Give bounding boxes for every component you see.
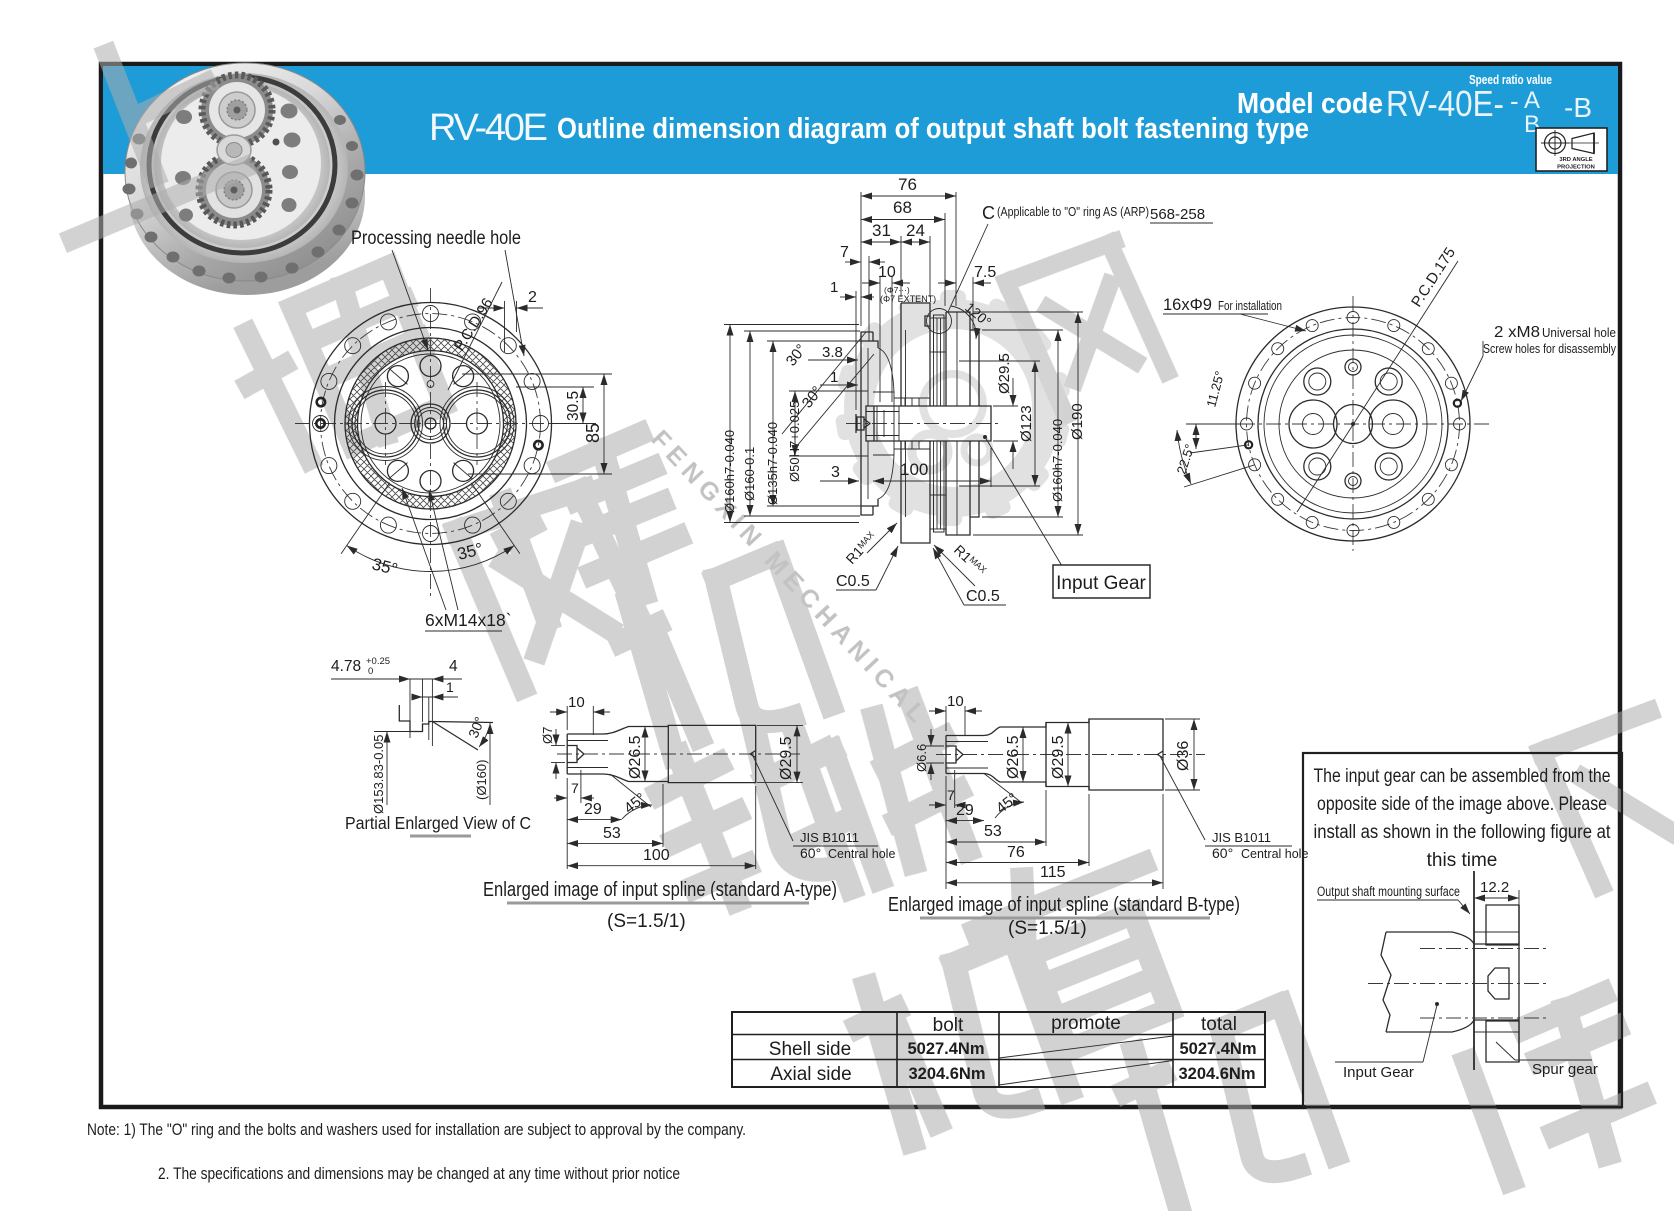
svg-text:Ø153.83-0.05: Ø153.83-0.05 — [371, 734, 386, 814]
svg-text:3RD ANGLE: 3RD ANGLE — [1559, 157, 1592, 163]
svg-text:Partial Enlarged View of C: Partial Enlarged View of C — [345, 813, 531, 833]
svg-text:C: C — [982, 203, 995, 223]
svg-text:Central hole: Central hole — [1241, 847, 1308, 861]
svg-text:Model code: Model code — [1237, 88, 1383, 120]
svg-text:JIS B1011: JIS B1011 — [800, 830, 859, 845]
svg-text:Input Gear: Input Gear — [1343, 1064, 1414, 1081]
svg-text:Ø160-0.1: Ø160-0.1 — [742, 447, 757, 501]
svg-text:C0.5: C0.5 — [966, 588, 1000, 605]
svg-text:JIS B1011: JIS B1011 — [1212, 830, 1271, 845]
svg-text:29: 29 — [584, 801, 602, 818]
svg-text:RV-40E-: RV-40E- — [1386, 83, 1504, 124]
svg-text:4: 4 — [449, 658, 458, 675]
svg-text:(Φ7 EXTENT): (Φ7 EXTENT) — [880, 294, 936, 304]
svg-text:Screw holes for disassembly: Screw holes for disassembly — [1483, 342, 1617, 356]
svg-text:Ø26.5: Ø26.5 — [627, 735, 644, 779]
svg-text:opposite side of the image abo: opposite side of the image above. Please — [1317, 794, 1607, 815]
svg-text:12.2: 12.2 — [1480, 879, 1509, 896]
svg-text:Output shaft mounting surface: Output shaft mounting surface — [1317, 884, 1460, 899]
svg-text:Ø26.5: Ø26.5 — [1005, 735, 1022, 779]
svg-text:3.8: 3.8 — [822, 344, 843, 361]
svg-text:Ø160h7-0.040: Ø160h7-0.040 — [1050, 419, 1065, 502]
svg-text:100: 100 — [900, 460, 928, 479]
svg-text:3204.6Nm: 3204.6Nm — [1178, 1065, 1255, 1083]
svg-text:10: 10 — [568, 694, 585, 711]
svg-text:7: 7 — [840, 244, 849, 261]
svg-text:0: 0 — [368, 666, 373, 677]
svg-text:2 xM8: 2 xM8 — [1494, 324, 1540, 341]
svg-text:Axial side: Axial side — [770, 1064, 851, 1085]
svg-text:100: 100 — [643, 847, 670, 864]
svg-text:PROJECTION: PROJECTION — [1557, 165, 1595, 171]
svg-text:5027.4Nm: 5027.4Nm — [907, 1040, 984, 1058]
svg-text:-: - — [1510, 86, 1519, 116]
svg-text:Ø50H7+0.025: Ø50H7+0.025 — [787, 401, 802, 482]
svg-text:60°: 60° — [800, 845, 821, 861]
svg-text:16xΦ9: 16xΦ9 — [1163, 296, 1212, 314]
svg-text:(S=1.5/1): (S=1.5/1) — [607, 911, 686, 932]
svg-text:115: 115 — [1040, 864, 1066, 881]
svg-text:7: 7 — [947, 787, 955, 803]
svg-text:A: A — [1524, 87, 1540, 114]
svg-text:53: 53 — [603, 825, 621, 842]
svg-text:29: 29 — [956, 802, 974, 819]
svg-text:10: 10 — [947, 693, 964, 710]
svg-text:30.5: 30.5 — [565, 391, 582, 421]
svg-text:bolt: bolt — [933, 1015, 964, 1036]
svg-text:Note: 1) The "O" ring and the: Note: 1) The "O" ring and the bolts and … — [87, 1120, 746, 1139]
svg-text:Shell side: Shell side — [769, 1039, 851, 1060]
svg-text:Ø7: Ø7 — [540, 727, 555, 744]
svg-text:Enlarged image of input spline: Enlarged image of input spline (standard… — [483, 879, 837, 901]
svg-text:Speed ratio value: Speed ratio value — [1469, 72, 1552, 87]
svg-text:Input Gear: Input Gear — [1056, 573, 1146, 594]
svg-text:The input gear can be assemble: The input gear can be assembled from the — [1314, 766, 1611, 787]
svg-text:568-258: 568-258 — [1150, 206, 1205, 223]
svg-text:2: 2 — [528, 289, 537, 306]
svg-text:(Applicable to "O" ring AS (AR: (Applicable to "O" ring AS (ARP) — [997, 205, 1149, 219]
svg-text:Ø29.5: Ø29.5 — [996, 353, 1013, 394]
svg-text:Processing needle hole: Processing needle hole — [351, 228, 521, 249]
svg-text:85: 85 — [583, 423, 603, 443]
svg-text:total: total — [1201, 1014, 1237, 1035]
svg-text:(Ø160): (Ø160) — [474, 760, 489, 800]
svg-text:Ø160h7-0.040: Ø160h7-0.040 — [722, 430, 737, 513]
svg-text:Central hole: Central hole — [828, 847, 895, 861]
svg-text:7: 7 — [571, 780, 579, 796]
svg-text:Enlarged image of input spline: Enlarged image of input spline (standard… — [888, 894, 1240, 916]
svg-text:60°: 60° — [1212, 845, 1233, 861]
svg-text:76: 76 — [898, 175, 917, 194]
svg-text:Ø6.6: Ø6.6 — [914, 744, 929, 772]
svg-text:Ø123: Ø123 — [1018, 405, 1035, 442]
svg-text:install as shown in the follow: install as shown in the following figure… — [1314, 822, 1612, 843]
svg-text:Ø36: Ø36 — [1175, 741, 1192, 771]
svg-text:Ø135h7-0.040: Ø135h7-0.040 — [765, 422, 780, 505]
svg-text:7.5: 7.5 — [974, 264, 996, 281]
svg-text:2. The specifications and dime: 2. The specifications and dimensions may… — [158, 1164, 680, 1183]
svg-text:this time: this time — [1427, 850, 1498, 871]
svg-text:For installation: For installation — [1218, 298, 1282, 313]
svg-text:Outline dimension diagram of o: Outline dimension diagram of output shaf… — [557, 113, 1309, 145]
svg-text:76: 76 — [1007, 844, 1025, 861]
svg-text:6xM14x18`: 6xM14x18` — [425, 610, 512, 630]
svg-text:promote: promote — [1051, 1013, 1121, 1034]
svg-text:1: 1 — [446, 679, 454, 695]
svg-text:31: 31 — [872, 221, 891, 240]
svg-text:68: 68 — [893, 198, 912, 217]
svg-text:10: 10 — [878, 264, 896, 281]
svg-text:Ø29.5: Ø29.5 — [778, 736, 795, 780]
svg-text:5027.4Nm: 5027.4Nm — [1179, 1040, 1256, 1058]
svg-text:Universal hole: Universal hole — [1542, 326, 1616, 340]
svg-text:53: 53 — [984, 823, 1002, 840]
svg-text:1: 1 — [830, 369, 838, 386]
svg-text:C0.5: C0.5 — [836, 573, 870, 590]
svg-text:3204.6Nm: 3204.6Nm — [908, 1065, 985, 1083]
svg-text:4.78: 4.78 — [331, 658, 361, 675]
svg-text:Ø190: Ø190 — [1069, 403, 1086, 440]
svg-text:3: 3 — [831, 464, 840, 481]
svg-text:RV-40E: RV-40E — [429, 107, 548, 149]
svg-text:Spur gear: Spur gear — [1532, 1061, 1598, 1078]
svg-text:Ø29.5: Ø29.5 — [1050, 735, 1067, 779]
svg-text:-B: -B — [1564, 92, 1592, 123]
svg-text:(S=1.5/1): (S=1.5/1) — [1008, 918, 1087, 939]
svg-text:24: 24 — [906, 221, 925, 240]
svg-text:1: 1 — [830, 279, 838, 296]
